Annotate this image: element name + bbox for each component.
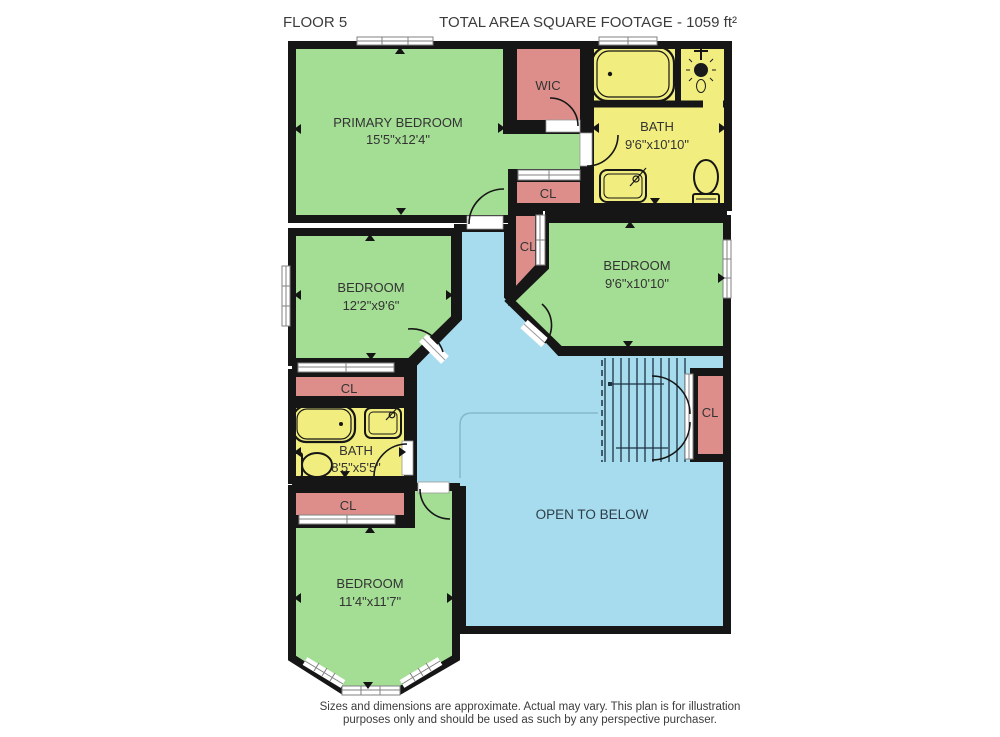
- closet-2-label: CL: [520, 239, 537, 254]
- bath-upper-label: BATH: [640, 119, 674, 134]
- closet-3-label: CL: [341, 381, 358, 396]
- window-primary-top: [357, 37, 433, 45]
- open-to-below-label: OPEN TO BELOW: [536, 507, 649, 522]
- closet-1-label: CL: [540, 186, 557, 201]
- bedroom-mid-dims: 12'2"x9'6": [343, 298, 400, 313]
- window-bath-top: [599, 37, 657, 45]
- bedroom-bottom-dims: 11'4"x11'7": [339, 594, 402, 609]
- bedroom-right-dims: 9'6"x10'10": [605, 276, 669, 291]
- closet-4-label: CL: [340, 498, 357, 513]
- closet-4-slider: [299, 515, 395, 524]
- bath-lower-door-gap: [402, 441, 413, 475]
- bedroom-right-label: BEDROOM: [603, 258, 670, 273]
- primary-door-gap: [467, 216, 503, 229]
- primary-bedroom-label: PRIMARY BEDROOM: [333, 115, 463, 130]
- bath-lower-dims: 8'5"x5'5": [331, 460, 381, 475]
- bedroom-bottom-door-gap: [418, 482, 449, 493]
- bath-lower-label: BATH: [339, 443, 373, 458]
- wic-label: WIC: [535, 78, 560, 93]
- wic-door-gap: [546, 120, 580, 132]
- bedroom-bottom-label: BEDROOM: [336, 576, 403, 591]
- total-area-label: TOTAL AREA SQUARE FOOTAGE - 1059 ft²: [439, 14, 737, 31]
- closet-3-slider: [298, 363, 394, 372]
- stair-closet-jamb: [685, 374, 693, 459]
- window-bedroom-mid-left: [282, 266, 290, 326]
- closet-1-slider: [518, 170, 580, 180]
- disclaimer-line-2: purposes only and should be used as such…: [343, 714, 717, 726]
- floor-plan-canvas: FLOOR 5 TOTAL AREA SQUARE FOOTAGE - 1059…: [0, 0, 1000, 737]
- bedroom-mid-label: BEDROOM: [337, 280, 404, 295]
- closet-2-slider: [536, 215, 545, 265]
- bath-upper-door-gap: [580, 133, 592, 166]
- bath-upper-dims: 9'6"x10'10": [625, 137, 689, 152]
- closet-5-label: CL: [702, 405, 719, 420]
- disclaimer-line-1: Sizes and dimensions are approximate. Ac…: [320, 701, 741, 713]
- window-bay-bottom: [342, 686, 400, 695]
- floor-title: FLOOR 5: [283, 14, 347, 31]
- primary-bedroom-dims: 15'5"x12'4": [366, 132, 430, 147]
- shower-entry-gap: [703, 100, 723, 108]
- window-bedroom-right-wall: [723, 240, 731, 298]
- floor-plan-page: FLOOR 5 TOTAL AREA SQUARE FOOTAGE - 1059…: [0, 0, 1000, 737]
